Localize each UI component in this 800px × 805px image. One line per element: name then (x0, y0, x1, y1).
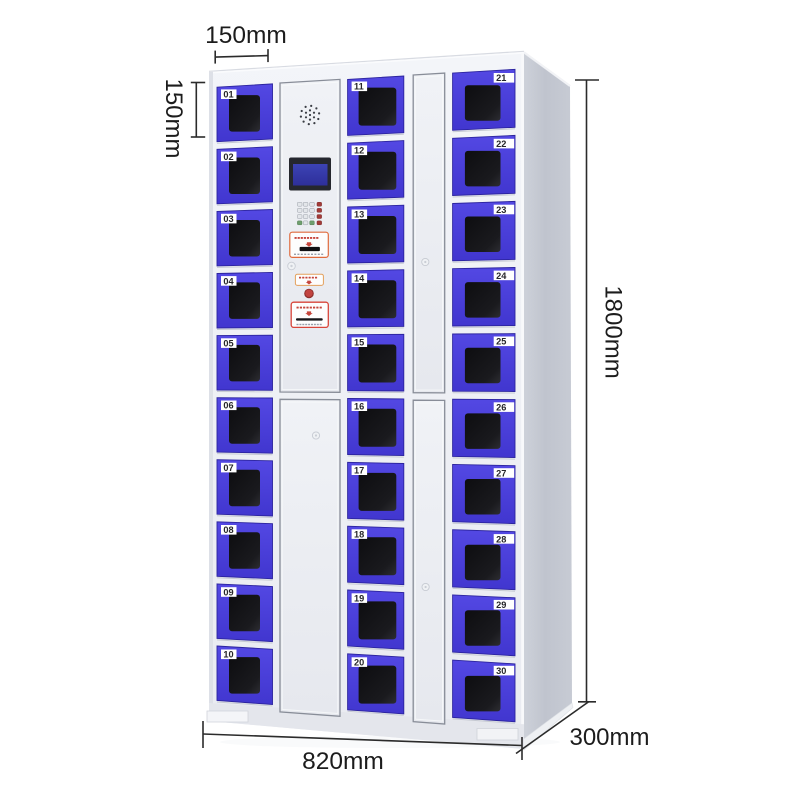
svg-text:10: 10 (223, 650, 233, 660)
svg-text:27: 27 (496, 468, 506, 478)
svg-text:1800mm: 1800mm (600, 285, 627, 378)
svg-text:16: 16 (354, 402, 364, 412)
svg-text:11: 11 (354, 82, 364, 92)
svg-text:25: 25 (496, 337, 506, 347)
svg-text:17: 17 (354, 466, 364, 476)
svg-text:09: 09 (223, 587, 233, 597)
svg-text:20: 20 (354, 658, 364, 668)
svg-text:03: 03 (223, 214, 233, 224)
svg-text:15: 15 (354, 338, 364, 348)
svg-text:06: 06 (223, 401, 233, 411)
svg-text:22: 22 (496, 139, 506, 149)
svg-text:26: 26 (496, 403, 506, 413)
svg-text:13: 13 (354, 210, 364, 220)
svg-text:30: 30 (496, 666, 506, 676)
svg-text:08: 08 (223, 525, 233, 535)
svg-text:23: 23 (496, 205, 506, 215)
svg-text:18: 18 (354, 530, 364, 540)
svg-text:21: 21 (496, 73, 506, 83)
svg-text:150mm: 150mm (160, 78, 187, 158)
svg-text:300mm: 300mm (569, 724, 649, 751)
svg-text:24: 24 (496, 271, 507, 281)
svg-text:29: 29 (496, 600, 506, 610)
svg-text:01: 01 (223, 90, 233, 100)
svg-text:02: 02 (223, 152, 233, 162)
svg-text:07: 07 (223, 463, 233, 473)
svg-text:150mm: 150mm (205, 22, 287, 49)
svg-text:12: 12 (354, 146, 364, 156)
svg-text:04: 04 (223, 276, 234, 286)
svg-text:28: 28 (496, 534, 506, 544)
svg-text:14: 14 (354, 274, 365, 284)
svg-text:05: 05 (223, 339, 233, 349)
svg-text:820mm: 820mm (302, 748, 384, 775)
svg-text:19: 19 (354, 594, 364, 604)
